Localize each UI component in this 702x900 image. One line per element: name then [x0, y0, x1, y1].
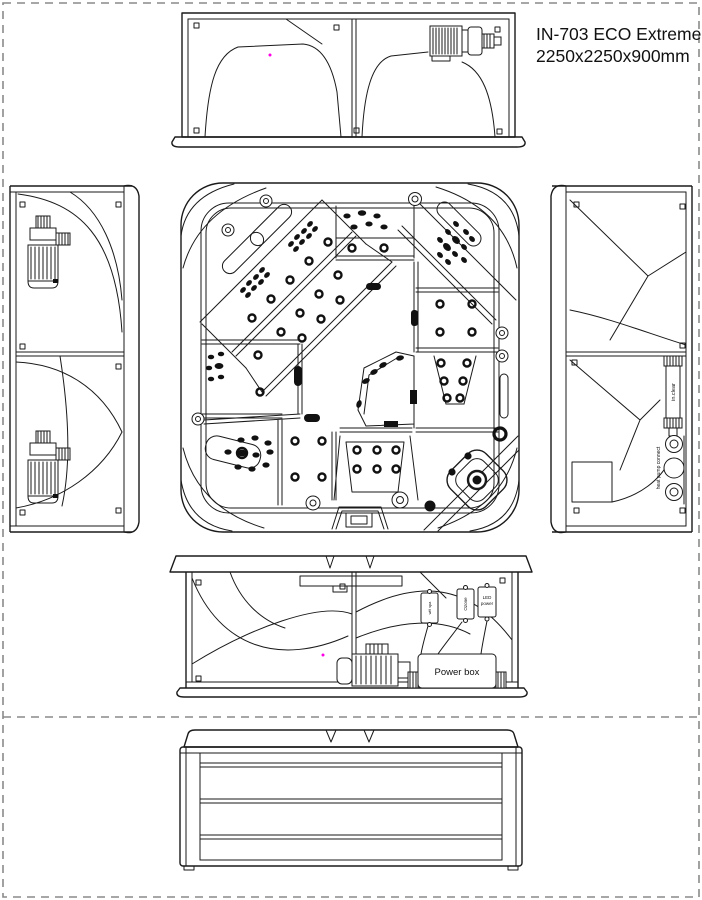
cabinet — [180, 747, 522, 866]
jet-cluster — [239, 266, 271, 299]
ozone-label: Ozone — [463, 597, 468, 611]
cabinet-panel-seams — [200, 763, 502, 839]
control-panel — [332, 507, 388, 529]
jet-cluster — [224, 435, 273, 471]
step-pad — [410, 390, 417, 404]
pump-icon — [430, 26, 501, 61]
suction-fitting — [304, 414, 320, 422]
drawing-sheet: IN-703 ECO Extreme 2250x2250x900mm — [0, 0, 702, 900]
right-elevation-view: in.clear heat pump connect — [551, 185, 692, 532]
seat-top-right — [398, 198, 516, 324]
seat-right-lower — [414, 356, 498, 432]
power-box-label: Power box — [435, 667, 480, 678]
seat-bottom-center — [292, 414, 419, 500]
hydro-jets — [249, 239, 344, 342]
spa-cover — [184, 730, 518, 747]
seat-left-middle — [202, 340, 302, 418]
rim-slot — [500, 374, 508, 418]
cad-marker-dot — [322, 654, 325, 657]
seat-lounger-bottom-left — [203, 414, 300, 505]
cover-lip — [170, 556, 532, 572]
suction-fitting — [366, 283, 381, 290]
led-light — [464, 452, 471, 459]
filter-corner — [424, 428, 519, 531]
seat-right-middle — [411, 262, 498, 352]
air-control-valves — [192, 193, 508, 511]
cover-notch — [326, 730, 336, 742]
speaker — [425, 501, 436, 512]
cover-closed-view — [180, 730, 522, 870]
cover-notch — [364, 730, 374, 742]
in-clear-unit: in.clear — [664, 356, 682, 436]
base-skirt — [172, 137, 525, 147]
technical-drawing: IN-703 ECO Extreme 2250x2250x900mm — [0, 0, 702, 900]
step-pad — [384, 421, 398, 427]
heat-pump-connections: heat pump connect — [656, 436, 684, 505]
led-power-label-line2: power — [481, 601, 494, 606]
in-clear-label: in.clear — [671, 383, 677, 401]
wifi-module-label: wifi spa — [428, 601, 432, 615]
pump-icon — [337, 644, 410, 688]
lid-notch — [326, 556, 334, 568]
base-skirt — [177, 688, 527, 697]
footwell-step — [355, 352, 417, 427]
plan-view — [181, 183, 519, 532]
back-elevation-view — [172, 13, 525, 147]
speaker — [494, 428, 506, 440]
model-title: IN-703 ECO Extreme — [536, 24, 701, 44]
jet-cluster — [436, 220, 476, 266]
wifi-module: wifi spa — [421, 590, 438, 655]
pump-icon — [28, 431, 70, 503]
grab-pad — [294, 366, 302, 386]
power-box: Power box — [408, 654, 506, 688]
front-elevation-view: Power box wifi spa Ozone LED power — [170, 556, 532, 697]
pump-icon — [28, 216, 70, 288]
jet-cluster — [343, 210, 387, 229]
rim-edge — [551, 185, 566, 532]
title-block: IN-703 ECO Extreme 2250x2250x900mm — [536, 24, 701, 66]
led-light — [448, 468, 455, 475]
seat-top-center — [336, 206, 414, 290]
rim-edge — [124, 185, 139, 532]
lid-notch — [366, 556, 374, 568]
jet-cluster — [206, 352, 224, 382]
heat-pump-connect-label: heat pump connect — [656, 446, 662, 489]
left-elevation-view — [10, 185, 139, 532]
display-screen — [351, 516, 367, 524]
grab-pad — [411, 310, 418, 326]
model-dimensions: 2250x2250x900mm — [536, 46, 690, 66]
cad-marker-dot — [269, 54, 272, 57]
jet-cluster — [287, 220, 319, 253]
led-power-label-line1: LED — [483, 595, 493, 600]
